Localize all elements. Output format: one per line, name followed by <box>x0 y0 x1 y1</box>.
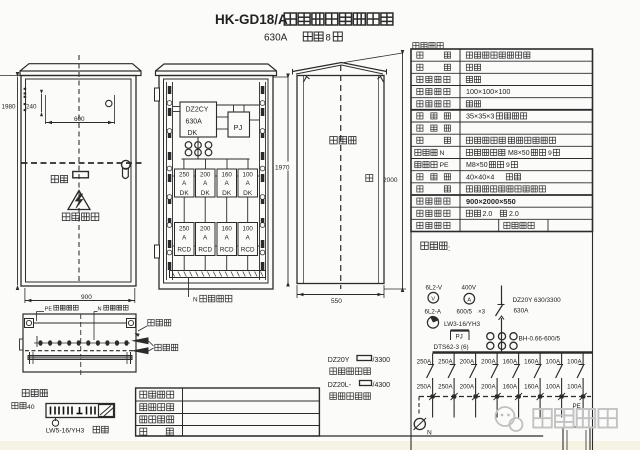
svg-text:RCD: RCD <box>241 247 255 254</box>
svg-text:PJ: PJ <box>456 334 463 341</box>
svg-text:/4300: /4300 <box>373 382 391 389</box>
svg-text:DK: DK <box>243 190 253 197</box>
svg-text:100A: 100A <box>546 384 561 391</box>
svg-text:M8×50: M8×50 <box>508 150 530 157</box>
svg-text:1970: 1970 <box>275 164 290 171</box>
svg-text:A: A <box>467 298 471 304</box>
svg-text:35×35×3: 35×35×3 <box>466 112 494 121</box>
svg-text:DZ20Y 630/3300: DZ20Y 630/3300 <box>513 297 562 304</box>
svg-text:200A: 200A <box>481 384 496 391</box>
svg-text:200A: 200A <box>460 384 475 391</box>
svg-text:200: 200 <box>200 226 211 233</box>
svg-text:2.0: 2.0 <box>509 211 519 218</box>
svg-text:LW3-16/YH3: LW3-16/YH3 <box>444 321 481 328</box>
svg-text:N: N <box>440 150 445 157</box>
svg-text:100: 100 <box>243 226 254 233</box>
svg-text:N: N <box>193 297 198 304</box>
svg-text:PE: PE <box>440 162 450 169</box>
svg-text:N: N <box>98 306 102 312</box>
svg-text:HK-GD18/A: HK-GD18/A <box>215 12 288 27</box>
svg-text:×3: ×3 <box>478 308 486 315</box>
svg-text:160: 160 <box>222 226 233 233</box>
svg-text:M8×50: M8×50 <box>466 162 488 169</box>
svg-text:DTS62-3 (6): DTS62-3 (6) <box>434 344 469 351</box>
svg-text:250A: 250A <box>417 384 432 391</box>
svg-text:RCD: RCD <box>220 247 234 254</box>
svg-text:2.0: 2.0 <box>483 211 493 218</box>
svg-text:6L2-A: 6L2-A <box>425 308 442 315</box>
svg-text:250: 250 <box>179 226 190 233</box>
svg-text:DZ20L-: DZ20L- <box>328 382 352 389</box>
svg-text:100A: 100A <box>567 384 582 391</box>
svg-text:100: 100 <box>243 172 254 179</box>
svg-text:DK: DK <box>222 190 232 197</box>
svg-text:RCD: RCD <box>177 247 191 254</box>
svg-text:8: 8 <box>326 33 331 44</box>
svg-text:PE: PE <box>45 306 53 312</box>
svg-text:550: 550 <box>331 298 342 305</box>
svg-text:1980: 1980 <box>2 104 17 111</box>
svg-text:160A: 160A <box>524 384 539 391</box>
svg-text:100×100×100: 100×100×100 <box>466 87 510 96</box>
svg-text::: : <box>448 244 450 253</box>
svg-text:DZ2CY: DZ2CY <box>186 107 209 114</box>
svg-text:PJ: PJ <box>234 123 243 132</box>
svg-text:BH-0.66-600/5: BH-0.66-600/5 <box>519 336 561 343</box>
svg-text:160A: 160A <box>503 384 518 391</box>
svg-text:630A: 630A <box>514 308 530 315</box>
svg-text:/3300: /3300 <box>373 357 391 364</box>
svg-text:9: 9 <box>548 150 552 157</box>
svg-text:600/5: 600/5 <box>457 308 473 315</box>
svg-text:DZ20Y: DZ20Y <box>328 357 350 364</box>
svg-text:6L2-V: 6L2-V <box>426 285 443 292</box>
svg-text:250A: 250A <box>438 384 453 391</box>
svg-text:40: 40 <box>27 404 35 411</box>
svg-text:200: 200 <box>200 172 211 179</box>
svg-text:9: 9 <box>506 162 510 169</box>
svg-text:V: V <box>431 297 435 303</box>
svg-text:900×2000×550: 900×2000×550 <box>466 197 516 206</box>
svg-text:DK: DK <box>188 130 198 137</box>
svg-text:900: 900 <box>81 294 92 301</box>
svg-text:DK: DK <box>180 190 190 197</box>
svg-text:LW5-16/YH3: LW5-16/YH3 <box>46 428 85 435</box>
svg-text:160: 160 <box>222 172 233 179</box>
svg-text:40×40×4: 40×40×4 <box>466 172 494 181</box>
svg-text:250: 250 <box>179 172 190 179</box>
svg-text:630A: 630A <box>186 119 203 126</box>
svg-text:N: N <box>427 430 432 437</box>
svg-text:DK: DK <box>201 190 211 197</box>
svg-text::: : <box>47 390 49 399</box>
svg-text:630A: 630A <box>264 33 288 44</box>
svg-text:2000: 2000 <box>383 177 398 184</box>
svg-text:240: 240 <box>26 104 37 111</box>
svg-text:RCD: RCD <box>198 247 212 254</box>
svg-text:600: 600 <box>74 116 85 123</box>
svg-text:400V: 400V <box>462 285 477 292</box>
